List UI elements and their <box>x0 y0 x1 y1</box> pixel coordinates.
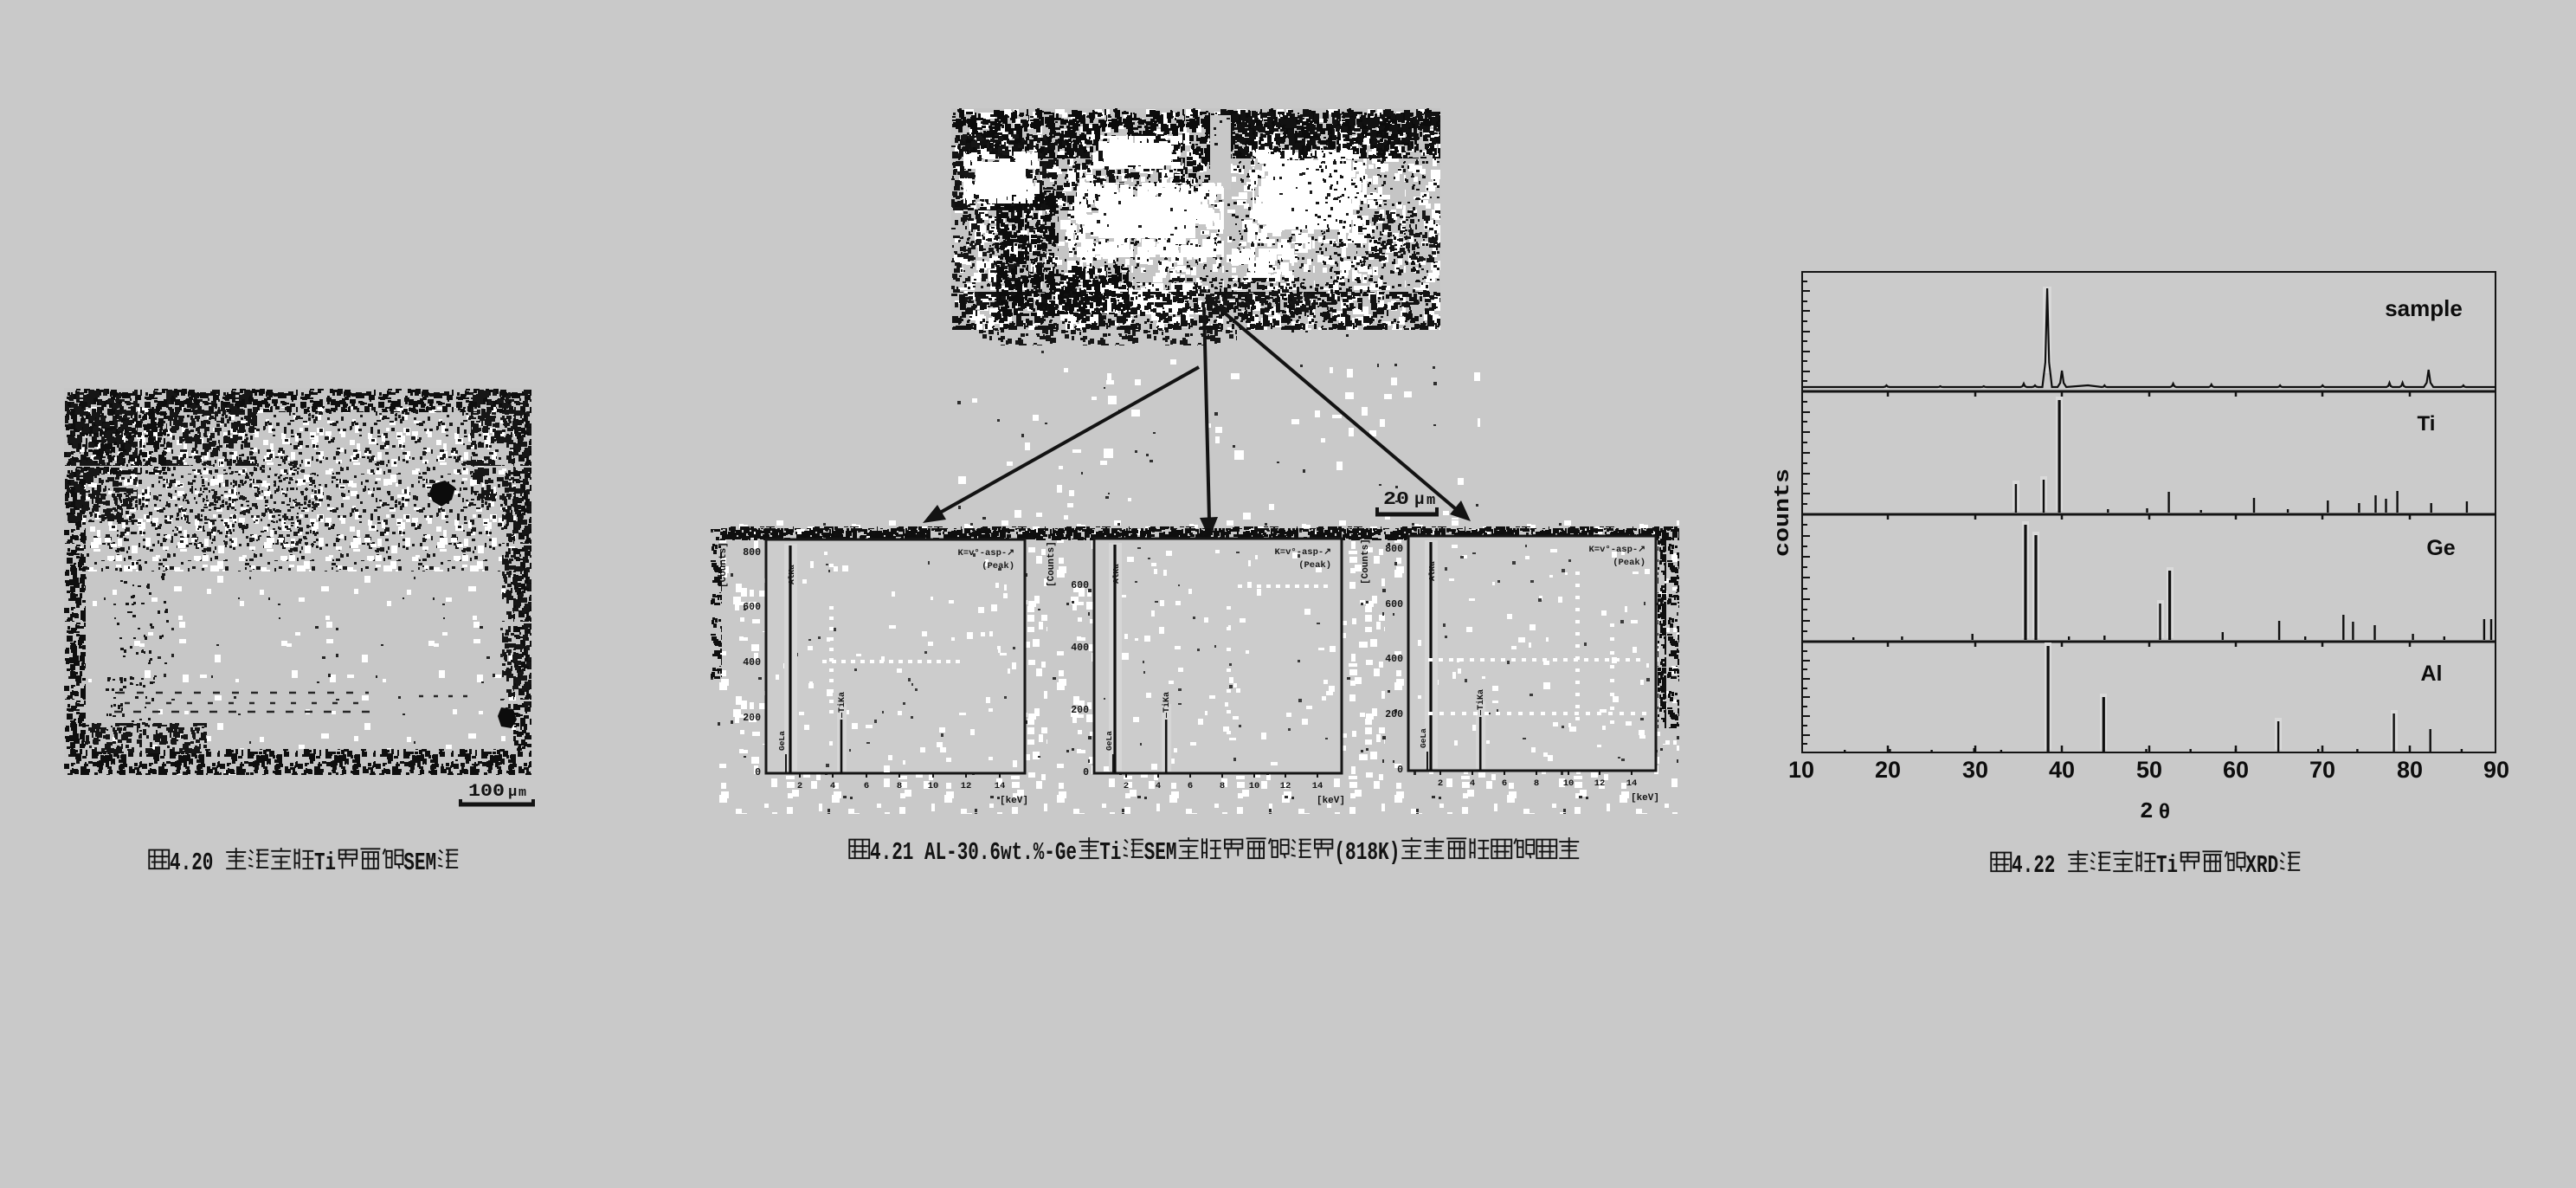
svg-text:θ: θ <box>2159 800 2170 823</box>
svg-text:200: 200 <box>743 713 761 724</box>
svg-text:4.20: 4.20 <box>170 849 224 877</box>
svg-text:GeLa: GeLa <box>777 731 787 751</box>
svg-text:600: 600 <box>1385 599 1403 610</box>
svg-text:600: 600 <box>1071 580 1089 591</box>
svg-text:4: 4 <box>1156 781 1161 791</box>
svg-text:8: 8 <box>897 781 902 791</box>
svg-text:8: 8 <box>1534 778 1539 789</box>
svg-text:(Peak): (Peak) <box>1613 558 1645 568</box>
svg-text:(818K): (818K) <box>1334 838 1400 867</box>
svg-text:K=v°-asp-↗: K=v°-asp-↗ <box>1274 547 1331 558</box>
svg-text:m: m <box>518 785 526 800</box>
svg-text:50: 50 <box>2136 757 2162 783</box>
svg-text:12: 12 <box>1280 781 1291 791</box>
svg-text:[Counts]: [Counts] <box>1361 539 1371 584</box>
svg-text:8: 8 <box>1220 781 1225 791</box>
svg-text:0: 0 <box>1083 767 1089 778</box>
svg-text:K=v°-asp-↗: K=v°-asp-↗ <box>1588 545 1645 555</box>
svg-text:[Counts]: [Counts] <box>718 542 729 588</box>
svg-text:(Peak): (Peak) <box>982 561 1014 571</box>
svg-text:[keV]: [keV] <box>1317 796 1345 806</box>
svg-text:Ti: Ti <box>314 849 336 877</box>
svg-text:Ge: Ge <box>2426 536 2455 560</box>
svg-text:AL-30.6wt.%-Ge: AL-30.6wt.%-Ge <box>924 838 1077 867</box>
svg-text:(Peak): (Peak) <box>1298 560 1331 571</box>
svg-text:14: 14 <box>1626 778 1638 789</box>
svg-text:80: 80 <box>2397 757 2423 783</box>
svg-text:2: 2 <box>1124 781 1129 791</box>
svg-text:2: 2 <box>1438 778 1443 789</box>
svg-text:Ti: Ti <box>1099 838 1121 867</box>
svg-text:10: 10 <box>1788 757 1814 783</box>
svg-text:4.22: 4.22 <box>2012 851 2066 880</box>
svg-text:30: 30 <box>1962 757 1988 783</box>
svg-text:10: 10 <box>1249 781 1260 791</box>
svg-text:2: 2 <box>2140 798 2154 824</box>
svg-text:20: 20 <box>1383 490 1409 510</box>
svg-text:10: 10 <box>928 781 939 791</box>
svg-text:800: 800 <box>1385 544 1403 555</box>
svg-text:K=v°-asp-↗: K=v°-asp-↗ <box>957 548 1014 558</box>
svg-text:GeLa: GeLa <box>1419 728 1428 748</box>
svg-text:200: 200 <box>1071 705 1089 716</box>
svg-text:4: 4 <box>1470 778 1475 789</box>
svg-text:AlKa: AlKa <box>1111 564 1121 584</box>
svg-text:2: 2 <box>797 781 802 791</box>
svg-text:Ti: Ti <box>2418 412 2436 436</box>
svg-text:SEM: SEM <box>1144 838 1177 867</box>
svg-text:μ: μ <box>508 783 517 799</box>
svg-text:6: 6 <box>1188 781 1193 791</box>
svg-text:200: 200 <box>1385 709 1403 720</box>
svg-text:μ: μ <box>1414 490 1425 508</box>
svg-text:100: 100 <box>468 782 505 802</box>
svg-text:6: 6 <box>864 781 869 791</box>
svg-text:AlKa: AlKa <box>1427 561 1437 581</box>
svg-text:4.21: 4.21 <box>870 838 924 867</box>
svg-text:800: 800 <box>743 547 761 558</box>
svg-text:XRD: XRD <box>2245 851 2278 880</box>
svg-text:0: 0 <box>1397 765 1403 776</box>
svg-text:—TiKa: —TiKa <box>1162 692 1172 719</box>
svg-text:Al: Al <box>2421 662 2443 686</box>
svg-text:AlKa: AlKa <box>787 565 796 584</box>
svg-text:600: 600 <box>743 602 761 613</box>
svg-text:[keV]: [keV] <box>1631 793 1659 804</box>
svg-text:6: 6 <box>1502 778 1507 789</box>
svg-text:400: 400 <box>743 657 761 668</box>
svg-text:Ti: Ti <box>2156 851 2178 880</box>
svg-text:[keV]: [keV] <box>1000 796 1028 806</box>
svg-text:40: 40 <box>2049 757 2075 783</box>
svg-text:10: 10 <box>1563 778 1575 789</box>
svg-text:60: 60 <box>2223 757 2249 783</box>
svg-text:m: m <box>1426 493 1435 509</box>
svg-text:12: 12 <box>1594 778 1606 789</box>
svg-text:0: 0 <box>755 767 761 778</box>
svg-text:400: 400 <box>1385 654 1403 665</box>
svg-text:—TiKa: —TiKa <box>837 692 847 719</box>
svg-text:[Counts]: [Counts] <box>1046 541 1057 587</box>
svg-text:400: 400 <box>1071 642 1089 654</box>
svg-text:90: 90 <box>2483 757 2509 783</box>
svg-text:counts: counts <box>1772 468 1795 557</box>
svg-text:12: 12 <box>961 781 972 791</box>
svg-text:GeLa: GeLa <box>1104 731 1114 751</box>
svg-text:14: 14 <box>1312 781 1323 791</box>
svg-text:sample: sample <box>2385 295 2463 321</box>
svg-text:70: 70 <box>2309 757 2335 783</box>
svg-text:SEM: SEM <box>403 849 436 877</box>
svg-text:4: 4 <box>830 781 835 791</box>
svg-text:20: 20 <box>1875 757 1901 783</box>
svg-text:14: 14 <box>995 781 1006 791</box>
